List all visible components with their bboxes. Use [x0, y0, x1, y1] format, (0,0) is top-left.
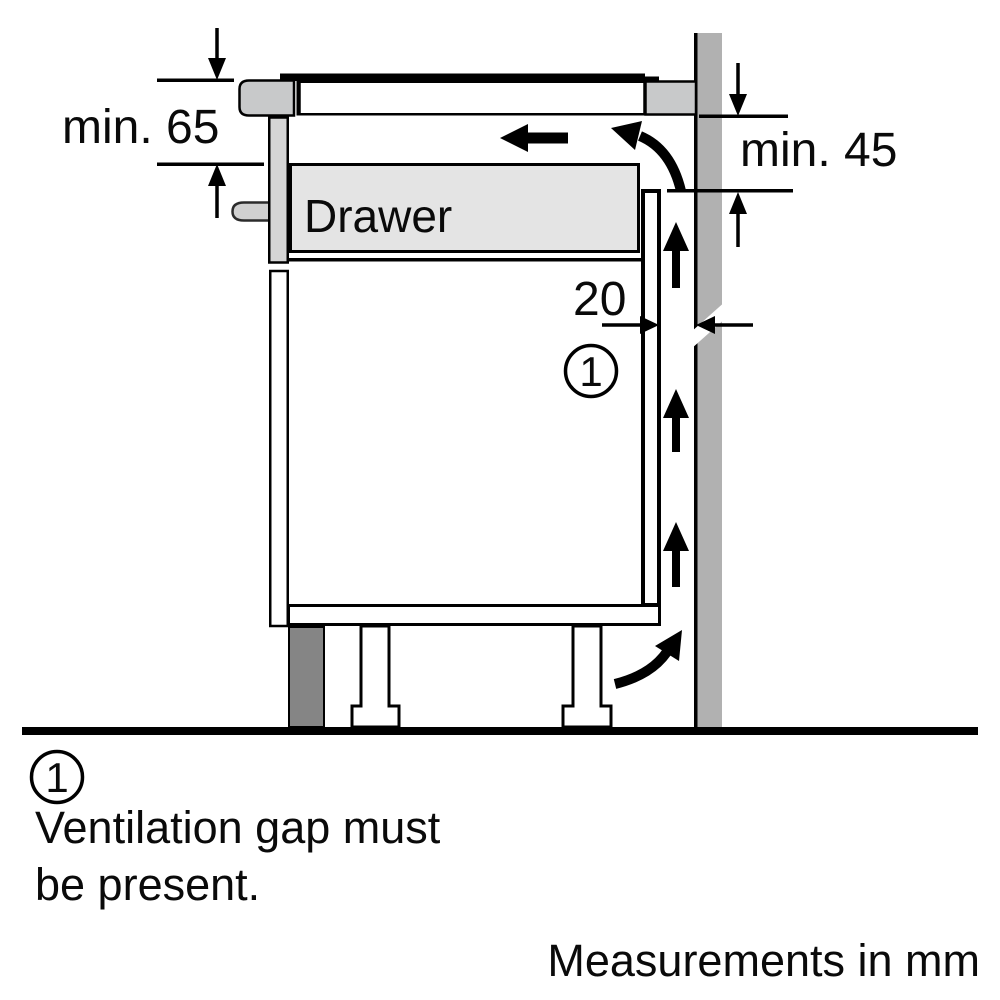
- cabinet-leg-front: [352, 626, 399, 727]
- hob-glass-top: [280, 74, 645, 82]
- hob-and-worktop: [240, 74, 697, 116]
- dim45-arrow-up-shaft: [736, 212, 740, 247]
- floor-line: [22, 727, 978, 735]
- hob-front-facia: [240, 81, 295, 116]
- cabinet-leg-rear: [563, 626, 611, 727]
- drawer-label: Drawer: [304, 190, 452, 242]
- dim65-arrow-up-head: [208, 164, 226, 186]
- legend-1-number: 1: [45, 754, 68, 801]
- dim65-arrow-down-head: [208, 58, 226, 80]
- wall: [691, 33, 727, 727]
- worktop: [300, 82, 645, 115]
- airflow-arrow-curve-bottom: [615, 630, 682, 684]
- callout-1: 1: [566, 346, 617, 397]
- dim45-label: min. 45: [740, 124, 897, 177]
- airflow-arrow-left: [500, 124, 568, 152]
- legend-text-line1: Ventilation gap must: [35, 802, 441, 853]
- dim20-arrow-left-shaft: [713, 323, 753, 327]
- dim45-line-bottom: [667, 189, 793, 193]
- installation-diagram: Drawer: [0, 0, 1000, 1000]
- dim20-arrow-right-shaft: [602, 323, 644, 327]
- cabinet-door-panel: [270, 271, 288, 626]
- measurements-note: Measurements in mm: [547, 935, 980, 986]
- dim65-line-top: [157, 79, 234, 83]
- legend-text-line2: be present.: [35, 859, 260, 910]
- dim45-arrow-up-head: [729, 192, 747, 214]
- wall-body: [698, 33, 723, 727]
- dim65-line-bottom: [157, 163, 264, 167]
- hob-facia-joint-line: [297, 81, 300, 116]
- cabinet-back-panel: [643, 191, 659, 605]
- plinth: [289, 627, 324, 727]
- dim65-arrow-down-shaft: [215, 28, 219, 59]
- cabinet: [270, 191, 659, 727]
- dim45-arrow-down-head: [729, 94, 747, 116]
- dim20-label: 20: [573, 273, 626, 326]
- drawer: Drawer: [233, 118, 639, 263]
- cabinet-bottom-panel: [289, 606, 660, 625]
- shelf-line: [289, 258, 643, 262]
- airflow-arrow-up-2: [663, 389, 689, 452]
- dim45-line-top: [699, 115, 788, 119]
- drawer-front-panel: [269, 118, 288, 263]
- dim45-arrow-down-shaft: [736, 63, 740, 95]
- dim65-arrow-up-shaft: [215, 184, 219, 218]
- diagram-canvas: Drawer: [0, 0, 1000, 1000]
- drawer-handle: [233, 203, 271, 221]
- legend: 1 Ventilation gap must be present. Measu…: [32, 752, 981, 987]
- wall-edge-line: [694, 33, 698, 727]
- hob-rear-block: [646, 82, 697, 115]
- dim65-label: min. 65: [62, 101, 219, 154]
- airflow-arrow-up-3: [663, 522, 689, 587]
- dimension-front-clearance: min. 65: [62, 28, 264, 218]
- airflow-arrow-up-1: [663, 222, 689, 288]
- callout-1-number: 1: [579, 348, 602, 395]
